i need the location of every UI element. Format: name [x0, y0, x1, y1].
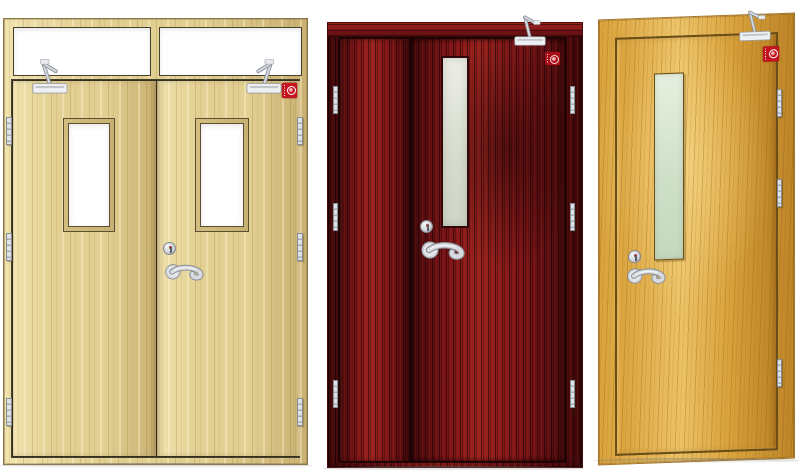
vision-glass	[200, 123, 244, 227]
fire-doors-product-photo	[0, 0, 800, 471]
label-text-strip	[765, 49, 767, 60]
lever-handle-icon	[626, 266, 672, 291]
label-emblem	[287, 86, 296, 95]
door-closer-icon	[738, 5, 772, 44]
fire-rating-label-icon	[545, 52, 560, 65]
doorway	[615, 32, 778, 456]
fire-rating-label-icon	[763, 46, 779, 62]
lever-handle-icon	[420, 240, 472, 266]
hinge-icon	[6, 117, 12, 145]
door-single-oak	[598, 13, 795, 466]
lever-handle-icon	[164, 263, 210, 286]
hinge-icon	[6, 398, 12, 426]
floor-shadow	[323, 466, 585, 471]
lock-cylinder-icon	[163, 242, 176, 255]
door-double-with-transom	[3, 18, 308, 465]
label-text-strip	[547, 54, 549, 63]
lock-cylinder-icon	[420, 220, 433, 233]
vision-panel	[441, 56, 469, 228]
door-leaf-narrow	[340, 39, 410, 461]
vision-glass	[68, 123, 110, 227]
doorway	[11, 79, 300, 458]
hinge-icon	[570, 203, 575, 231]
door-double-mahogany	[327, 22, 583, 468]
floor-shadow	[0, 463, 312, 468]
hinge-icon	[297, 233, 303, 261]
door-leaf-left	[13, 81, 156, 456]
hinge-icon	[333, 380, 338, 408]
hinge-icon	[297, 117, 303, 145]
door-closer-icon	[513, 11, 547, 49]
door-leaf	[617, 34, 776, 454]
hinge-icon	[777, 359, 782, 387]
vision-panel	[654, 72, 684, 260]
label-emblem	[550, 55, 559, 64]
hinge-icon	[297, 398, 303, 426]
door-closer-icon	[245, 56, 283, 96]
hinge-icon	[570, 86, 575, 114]
hinge-icon	[570, 380, 575, 408]
vision-panel	[63, 118, 115, 232]
vision-panel	[195, 118, 249, 232]
hinge-icon	[6, 233, 12, 261]
floor-shadow	[594, 458, 800, 463]
hinge-icon	[333, 203, 338, 231]
fire-rating-label-icon	[282, 83, 297, 98]
label-emblem	[769, 49, 778, 58]
hinge-icon	[333, 86, 338, 114]
label-text-strip	[284, 85, 286, 96]
hinge-icon	[777, 179, 782, 207]
hinge-icon	[777, 89, 782, 117]
door-closer-icon	[31, 56, 69, 96]
